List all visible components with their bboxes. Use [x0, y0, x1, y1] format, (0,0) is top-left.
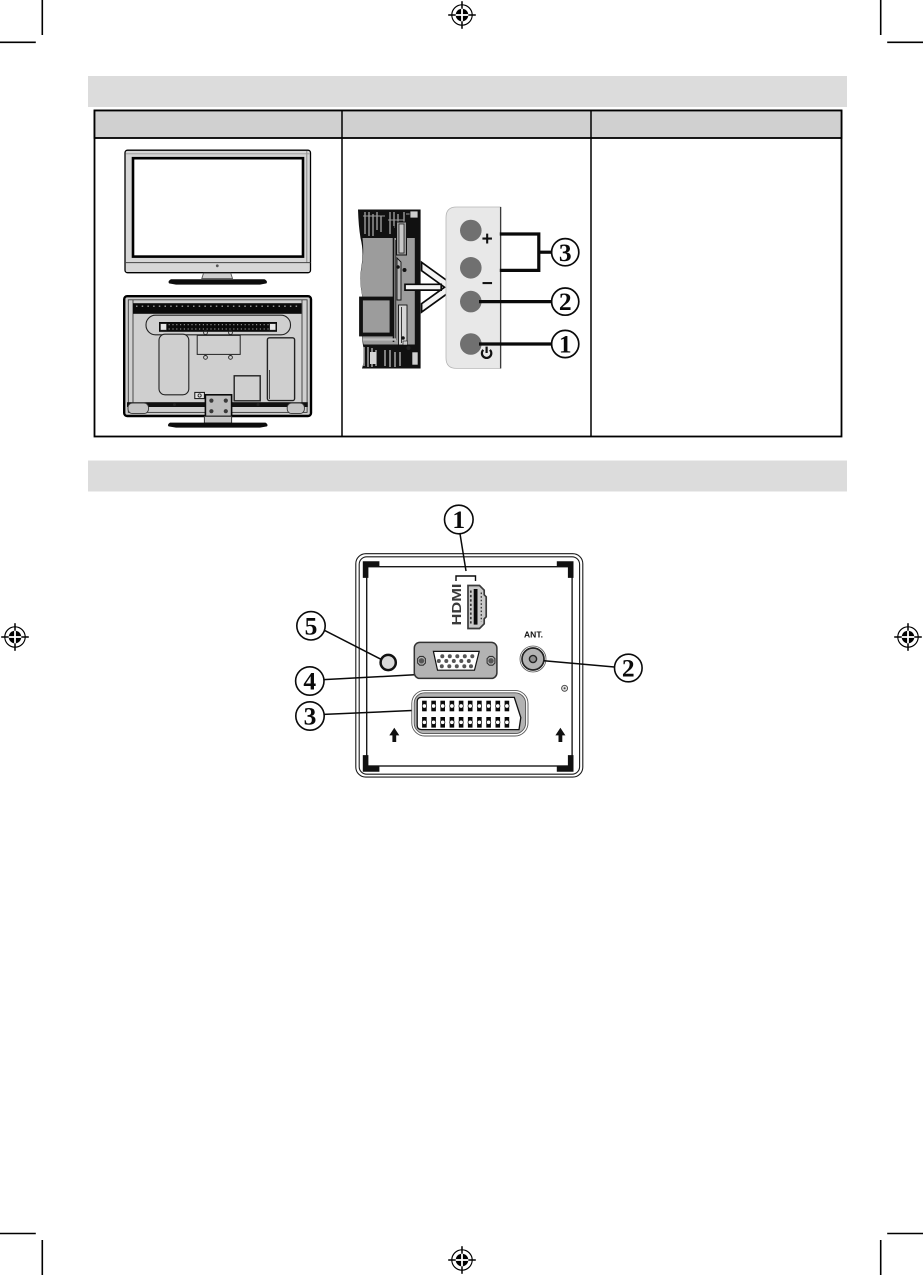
svg-text:1: 1: [559, 330, 572, 359]
svg-text:1: 1: [452, 505, 465, 534]
svg-text:−: −: [482, 273, 493, 294]
svg-text:2: 2: [559, 287, 572, 316]
svg-text:4: 4: [303, 667, 316, 696]
svg-text:5: 5: [305, 612, 318, 641]
svg-text:+: +: [482, 229, 493, 250]
svg-text:2: 2: [622, 654, 635, 683]
svg-text:HDMI: HDMI: [449, 584, 464, 626]
svg-text:ANT.: ANT.: [524, 630, 543, 640]
svg-text:3: 3: [304, 702, 317, 731]
svg-text:3: 3: [559, 238, 572, 267]
